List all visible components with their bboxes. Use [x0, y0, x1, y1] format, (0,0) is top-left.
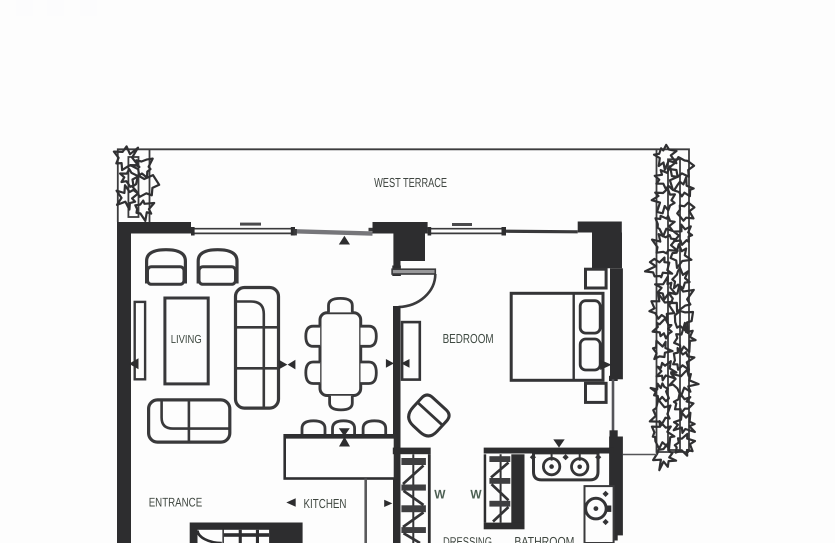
svg-text:LIVING: LIVING — [171, 333, 202, 346]
svg-text:DRESSING: DRESSING — [443, 534, 492, 543]
svg-text:W: W — [434, 488, 445, 502]
svg-text:W: W — [470, 488, 481, 502]
svg-text:KITCHEN: KITCHEN — [304, 496, 347, 511]
svg-text:WEST TERRACE: WEST TERRACE — [374, 175, 447, 190]
svg-text:ENTRANCE: ENTRANCE — [149, 496, 203, 510]
svg-text:BATHROOM: BATHROOM — [514, 534, 574, 543]
svg-text:BEDROOM: BEDROOM — [443, 331, 494, 346]
